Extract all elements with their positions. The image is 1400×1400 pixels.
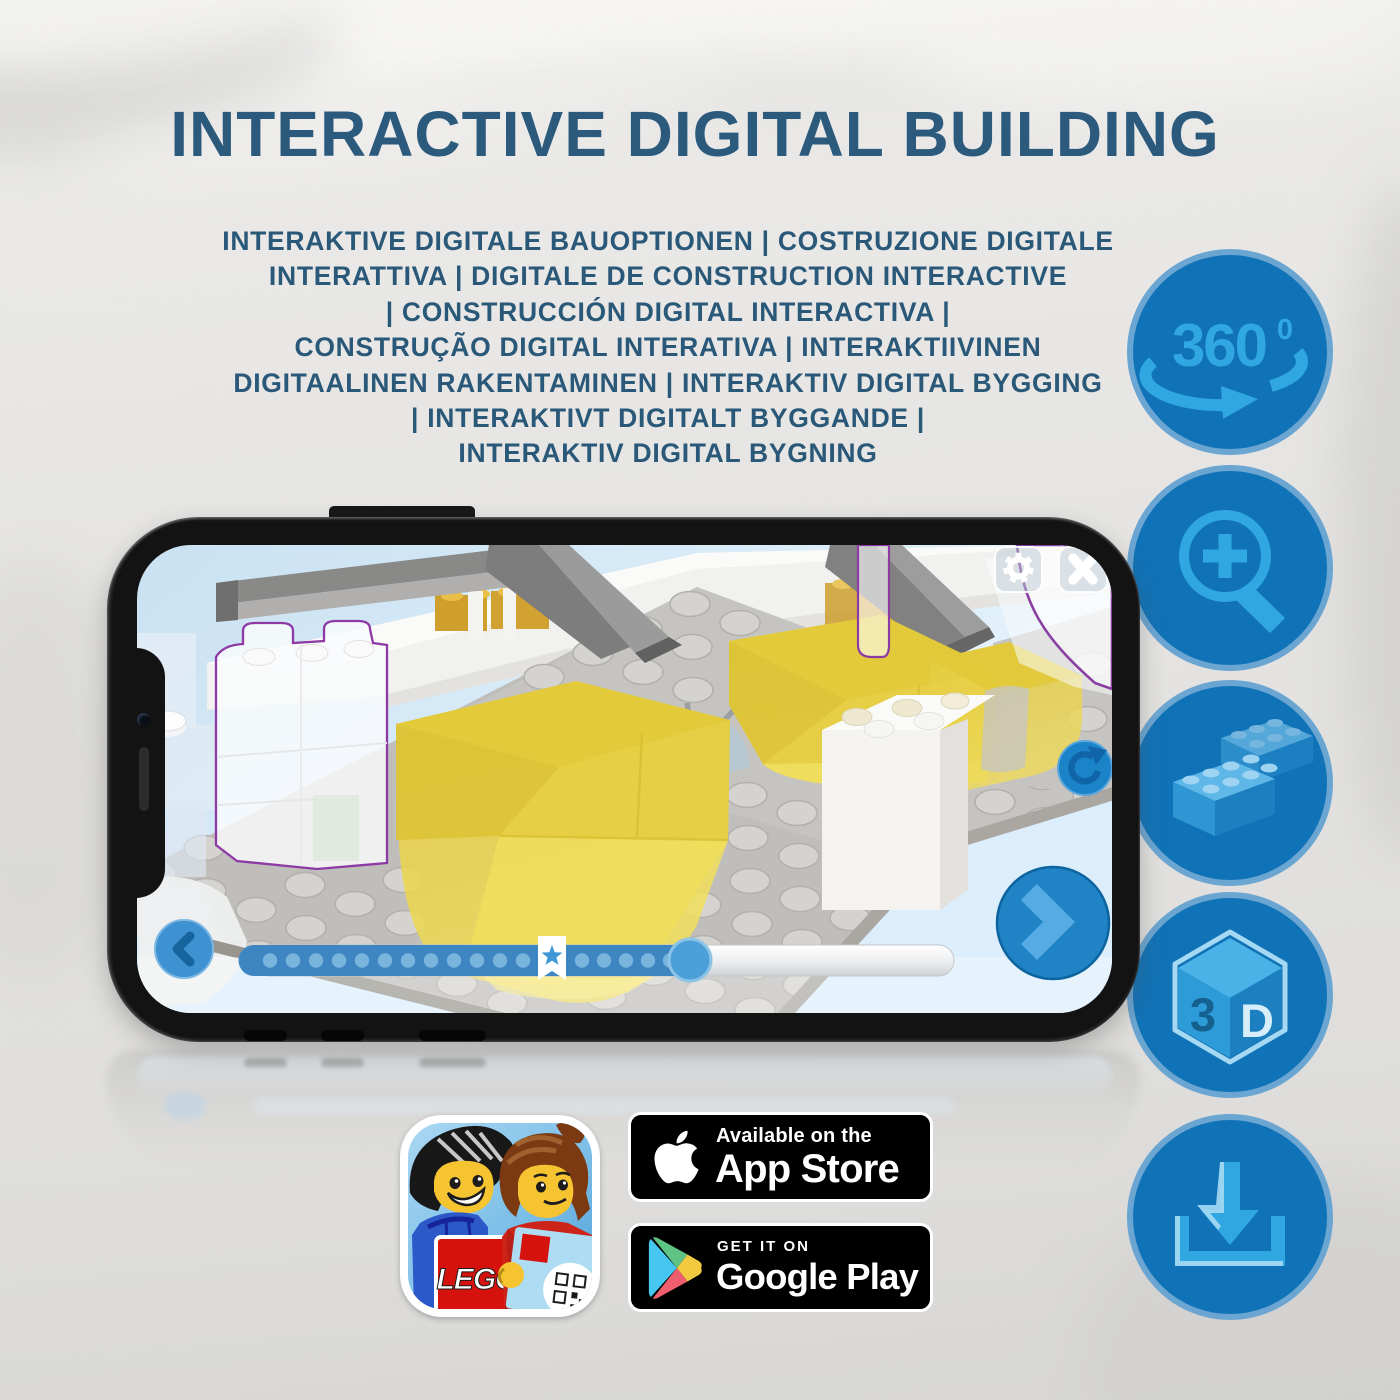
svg-text:0: 0 (1277, 314, 1293, 346)
svg-text:D: D (1240, 994, 1274, 1047)
svg-text:360: 360 (1172, 312, 1266, 379)
svg-text:3: 3 (1190, 988, 1216, 1041)
